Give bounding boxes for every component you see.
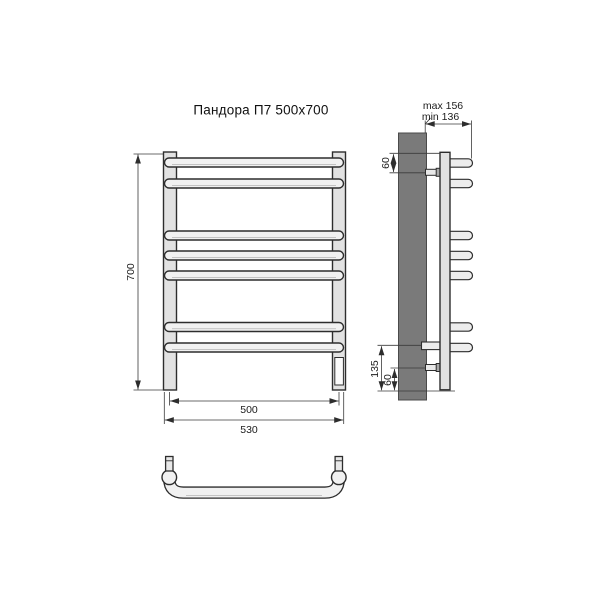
towel-bar: [165, 251, 344, 260]
wall-bracket-bottom: [426, 364, 441, 372]
wall-bracket-top: [426, 168, 441, 176]
joint-ball-right: [332, 470, 347, 485]
bottom-view: [162, 457, 346, 496]
label-width-530: 530: [240, 424, 258, 435]
post-stub: [166, 457, 173, 472]
label-depth-min: min 136: [422, 112, 459, 123]
drawing-title: Пандора П7 500x700: [193, 103, 328, 117]
towel-rail-drawing: [0, 0, 600, 600]
heating-element-box: [335, 358, 344, 386]
label-60-bottom: 60: [383, 374, 394, 386]
post-stubs: [166, 457, 343, 472]
technical-drawing-page: Пандора П7 500x700 700 500 530 max 156 m…: [0, 0, 600, 600]
bottom-bar-wall-connector: [422, 342, 441, 350]
front-towel-bars: [165, 158, 344, 352]
label-height-700: 700: [125, 263, 136, 281]
towel-bar: [165, 323, 344, 332]
towel-bar: [165, 158, 344, 167]
towel-bar: [165, 343, 344, 352]
label-depth-max: max 156: [423, 100, 463, 111]
towel-bar: [165, 179, 344, 188]
side-post: [440, 152, 450, 389]
post-stub: [335, 457, 342, 472]
label-135: 135: [369, 360, 380, 378]
joint-ball-left: [162, 470, 177, 485]
front-view: [164, 152, 346, 390]
label-60-top: 60: [381, 157, 392, 169]
bar-curve-core: [169, 474, 338, 493]
towel-bar: [165, 231, 344, 240]
label-width-500: 500: [240, 405, 258, 416]
towel-bar: [165, 271, 344, 280]
